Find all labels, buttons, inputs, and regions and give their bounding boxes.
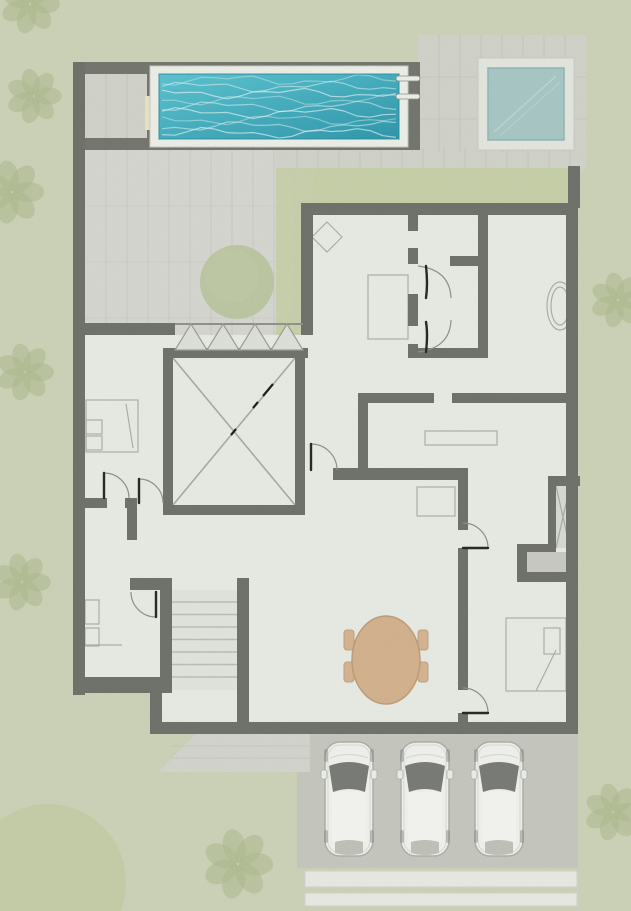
patio-tree xyxy=(200,245,274,319)
car-rear-window xyxy=(411,840,439,855)
car-roof xyxy=(332,792,366,842)
car-wheel xyxy=(474,749,478,762)
stairs xyxy=(172,590,237,690)
car-wheel xyxy=(446,749,450,762)
car-mirror xyxy=(321,770,327,779)
car-wheel xyxy=(400,830,404,843)
car-windshield xyxy=(405,762,445,792)
parked-cars xyxy=(321,742,527,856)
car-mirror xyxy=(447,770,453,779)
alcove xyxy=(527,552,567,572)
car-wheel xyxy=(520,830,524,843)
dining-chair xyxy=(418,630,428,650)
car-windshield xyxy=(329,762,369,792)
car-roof xyxy=(408,792,442,842)
car-rear-window xyxy=(335,840,363,855)
car-wheel xyxy=(370,749,374,762)
car-wheel xyxy=(324,749,328,762)
car-wheel xyxy=(446,830,450,843)
car xyxy=(397,742,453,856)
floor-plan-svg xyxy=(0,0,631,911)
car-mirror xyxy=(397,770,403,779)
car-wheel xyxy=(520,749,524,762)
car-mirror xyxy=(521,770,527,779)
car-mirror xyxy=(471,770,477,779)
car-wheel xyxy=(324,830,328,843)
car-mirror xyxy=(371,770,377,779)
site-plan xyxy=(0,0,631,911)
dining-table xyxy=(352,616,420,704)
car-wheel xyxy=(370,830,374,843)
car-wheel xyxy=(474,830,478,843)
car-windshield xyxy=(479,762,519,792)
car-roof xyxy=(482,792,516,842)
car xyxy=(471,742,527,856)
car-wheel xyxy=(400,749,404,762)
swimming-pool xyxy=(73,62,420,150)
jacuzzi xyxy=(478,58,574,150)
car-rear-window xyxy=(485,840,513,855)
car xyxy=(321,742,377,856)
dining-chair xyxy=(344,630,354,650)
